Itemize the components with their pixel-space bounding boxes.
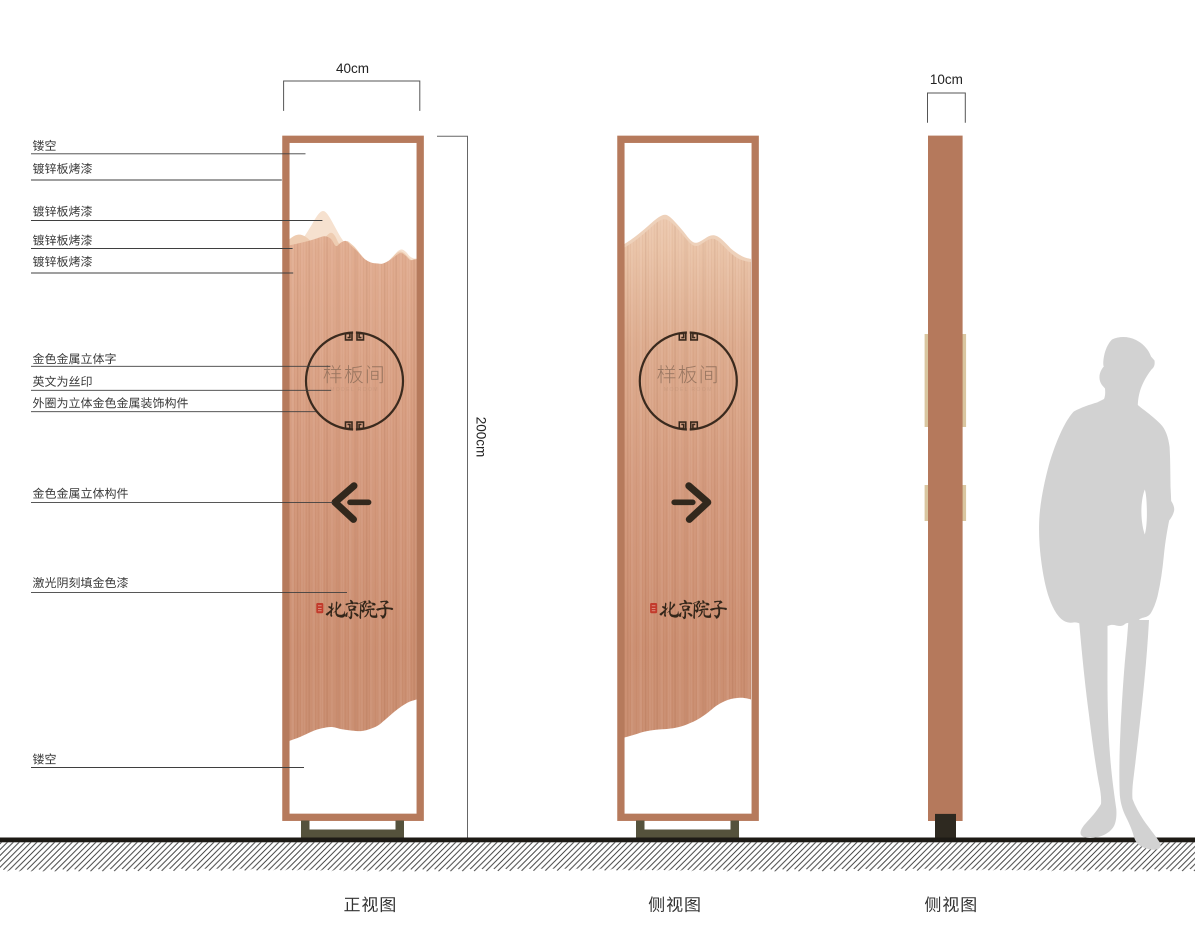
svg-text:200cm: 200cm <box>474 417 489 458</box>
svg-text:10cm: 10cm <box>930 72 963 87</box>
svg-text:40cm: 40cm <box>336 61 369 76</box>
svg-text:MODEL ROOM: MODEL ROOM <box>330 387 379 393</box>
svg-text:MODEL ROOM: MODEL ROOM <box>664 387 713 393</box>
